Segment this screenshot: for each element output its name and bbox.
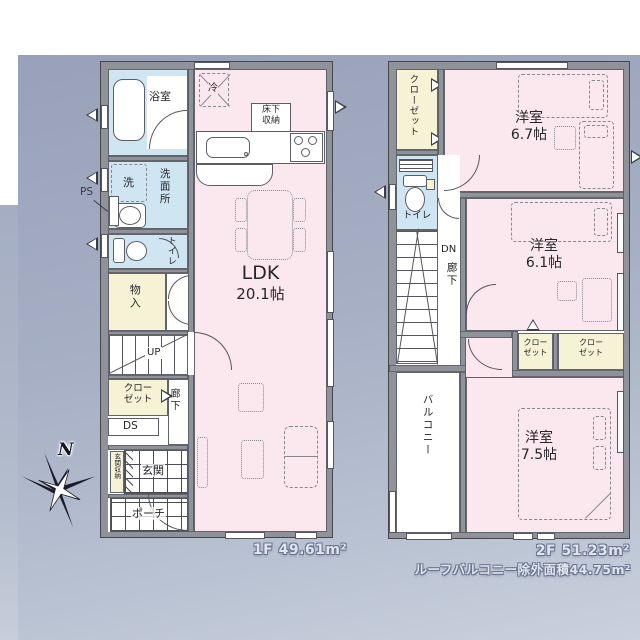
pillow (593, 416, 606, 440)
washroom-label: 洗面所 (158, 168, 171, 206)
pillow (584, 125, 608, 138)
closet-2f-top-label: クローゼット (407, 74, 418, 137)
window (194, 62, 230, 69)
balcony-opening (406, 533, 452, 540)
window-vent-icon (86, 171, 98, 185)
bathroom-label: 浴室 (149, 90, 171, 103)
bedroom-6-1-label: 洋室 6.1帖 (509, 238, 579, 272)
window (101, 234, 108, 258)
floor2-area-label: 2F 51.23m² (440, 543, 630, 559)
balcony-label: バルコニー (421, 394, 434, 457)
window (101, 168, 108, 192)
backdrop-left (0, 205, 18, 640)
hallway-1f-label: 廊下 (167, 388, 179, 412)
toilet-2f-label: トイレ (397, 210, 437, 221)
window-vent-icon (86, 108, 98, 122)
north-label: N (58, 440, 74, 460)
window-vent-icon (374, 185, 386, 199)
window (389, 491, 396, 533)
porch-label: ポーチ (131, 507, 166, 520)
window (389, 184, 396, 210)
duct-label: DS (123, 420, 138, 433)
dining-chair (235, 198, 247, 222)
window-vent-icon (335, 100, 347, 114)
wall (460, 331, 512, 338)
ldk-label: LDK 20.1帖 (194, 262, 327, 303)
toilet-bowl (126, 241, 147, 261)
window (327, 319, 334, 387)
pipe-space-label: PS (80, 186, 93, 199)
window-vent-icon (86, 237, 98, 251)
window (327, 251, 334, 313)
floor-plan-1f: 浴室 洗 洗面所 トイレ 物入 UP クロー ゼット DS 廊下 玄関収納 玄関… (100, 61, 333, 538)
entrance-step-hatch (124, 450, 133, 494)
storage-label: 物入 (128, 284, 141, 310)
dining-chair (293, 228, 306, 252)
stairs-up-label: UP (145, 347, 162, 359)
washbasin-bowl (119, 206, 141, 225)
window (327, 421, 334, 469)
closet-b-label: クロー ゼット (558, 338, 624, 359)
pillow (593, 446, 606, 470)
window (295, 532, 317, 539)
entrance-storage-label: 玄関収納 (112, 453, 120, 479)
underfloor-storage-label: 床下 収納 (251, 105, 291, 128)
window (496, 62, 568, 69)
floor-plan-2f: クローゼット トイレ 洋室 6.7帖 DN 廊下 洋室 6.1帖 クロー ゼット (388, 61, 630, 539)
stairs-down (396, 230, 438, 364)
closet-1f-label: クロー ゼット (110, 383, 166, 406)
stove-burner (294, 136, 303, 145)
chair (554, 126, 576, 150)
bathtub (113, 79, 145, 141)
tv-board (197, 437, 208, 488)
window (617, 273, 624, 331)
sofa-divider (285, 456, 317, 457)
pillow (594, 208, 608, 236)
wall (512, 370, 624, 377)
pipe-space (109, 196, 119, 226)
chair (557, 281, 577, 301)
stairs-down-label: DN (440, 244, 457, 256)
window-vent-icon (631, 150, 640, 164)
desk (582, 278, 612, 322)
window (327, 91, 334, 131)
furniture-square (238, 383, 264, 412)
sink-drain (244, 152, 248, 156)
stove-burner (308, 136, 317, 145)
closet-a-label: クロー ゼット (518, 338, 553, 359)
closet-door-icon (526, 319, 540, 331)
window (225, 532, 265, 539)
roof-balcony-note: ルーフバルコニー除外面積44.75m² (375, 559, 631, 578)
side-table (241, 440, 264, 479)
pillow (589, 80, 604, 110)
toilet-label: トイレ (165, 236, 176, 266)
hallway-2f-label: 廊下 (445, 262, 458, 287)
window (101, 105, 108, 129)
window (537, 533, 555, 540)
entrance-label: 玄関 (141, 464, 165, 477)
window (513, 533, 533, 540)
wall (389, 365, 466, 372)
dining-table (247, 190, 293, 260)
dining-chair (293, 198, 306, 222)
toilet-tank (403, 175, 427, 187)
refrigerator-label: 冷 (208, 83, 218, 95)
washing-machine-label: 洗 (123, 176, 134, 189)
kitchen-counter-lower (196, 164, 273, 186)
toilet-tank (113, 238, 125, 263)
floor1-area-label: 1F 49.61m² (195, 542, 405, 558)
toilet-bowl (405, 187, 425, 212)
stove-burner (301, 148, 310, 157)
toilet-counter (426, 179, 435, 190)
compass: N (10, 438, 110, 543)
dining-chair (235, 228, 247, 252)
window (617, 391, 624, 453)
toilet-window-shelf (399, 159, 433, 172)
window (617, 213, 624, 253)
sofa (284, 426, 318, 488)
